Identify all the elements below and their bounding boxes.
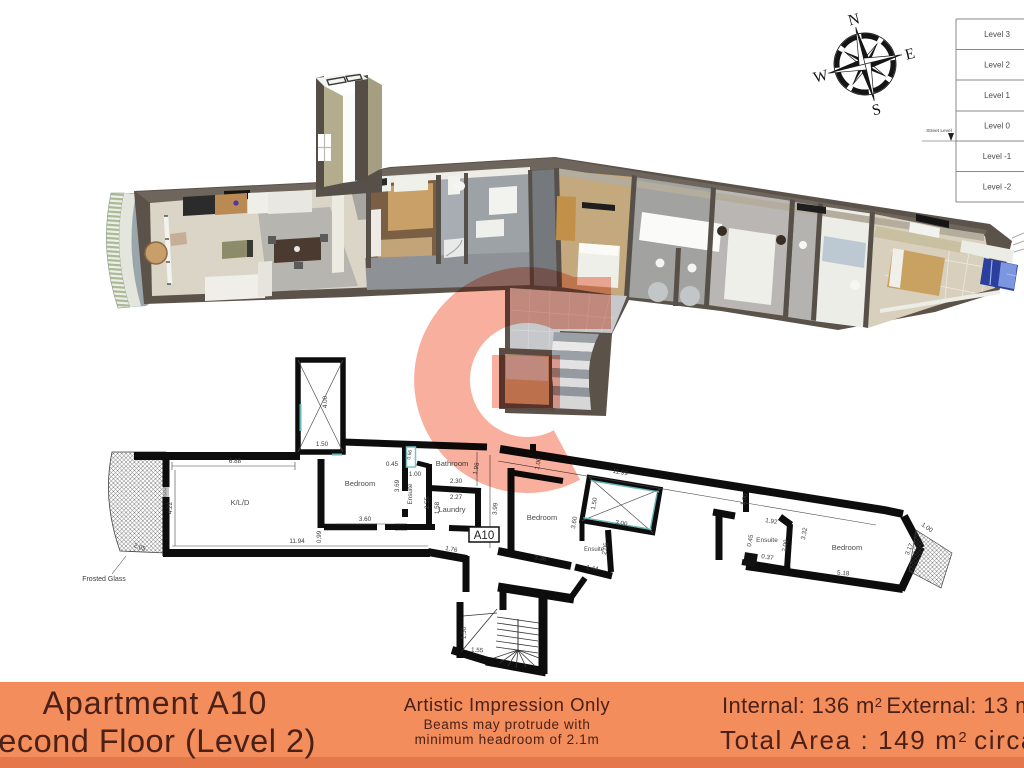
svg-text:A10: A10 bbox=[474, 530, 494, 542]
svg-text:Laundry: Laundry bbox=[438, 505, 465, 514]
svg-text:3.60: 3.60 bbox=[570, 516, 579, 530]
svg-text:minimum headroom of 2.1m: minimum headroom of 2.1m bbox=[415, 732, 600, 747]
svg-text:2.27: 2.27 bbox=[450, 494, 463, 501]
svg-text:3.60: 3.60 bbox=[359, 516, 372, 523]
svg-text:1.00: 1.00 bbox=[920, 521, 934, 534]
svg-text:3.69: 3.69 bbox=[394, 479, 401, 492]
svg-text:Ensuite: Ensuite bbox=[756, 537, 778, 544]
svg-text:11.99: 11.99 bbox=[612, 468, 629, 478]
svg-text:6.88: 6.88 bbox=[229, 458, 242, 465]
svg-text:Bedroom: Bedroom bbox=[527, 513, 557, 522]
svg-text:Beams may protrude with: Beams may protrude with bbox=[424, 717, 591, 732]
svg-text:E: E bbox=[903, 45, 916, 64]
svg-text:Level 1: Level 1 bbox=[984, 91, 1010, 100]
svg-text:Level -1: Level -1 bbox=[983, 152, 1012, 161]
svg-text:Bedroom: Bedroom bbox=[345, 479, 375, 488]
svg-text:Level -2: Level -2 bbox=[983, 183, 1012, 192]
svg-text:Ensuite: Ensuite bbox=[584, 547, 605, 553]
svg-text:Bedroom: Bedroom bbox=[832, 543, 862, 552]
svg-text:1.50: 1.50 bbox=[316, 441, 329, 448]
svg-text:2.55: 2.55 bbox=[424, 496, 431, 509]
svg-text:1.50: 1.50 bbox=[461, 626, 468, 639]
svg-text:W: W bbox=[812, 66, 831, 86]
svg-text:2.30: 2.30 bbox=[450, 478, 463, 485]
svg-text:1.92: 1.92 bbox=[765, 517, 779, 526]
svg-text:1.00: 1.00 bbox=[409, 471, 422, 478]
svg-text:5.18: 5.18 bbox=[837, 569, 850, 577]
svg-text:Level 2: Level 2 bbox=[984, 61, 1010, 70]
svg-text:Level 0: Level 0 bbox=[984, 122, 1010, 131]
svg-text:Frosted Glass: Frosted Glass bbox=[82, 576, 126, 583]
svg-text:Apartment A10: Apartment A10 bbox=[43, 685, 268, 721]
svg-text:Level 3: Level 3 bbox=[984, 30, 1010, 39]
svg-text:0.45: 0.45 bbox=[386, 461, 399, 468]
svg-text:Second Floor (Level 2): Second Floor (Level 2) bbox=[0, 723, 316, 759]
svg-text:11.94: 11.94 bbox=[289, 538, 305, 545]
svg-text:Total Area : 149 m2 circa: Total Area : 149 m2 circa bbox=[720, 725, 1024, 755]
svg-text:0.45: 0.45 bbox=[746, 534, 755, 548]
svg-text:Ensuite: Ensuite bbox=[407, 483, 414, 505]
svg-text:S: S bbox=[870, 101, 882, 120]
svg-text:1.55: 1.55 bbox=[471, 647, 484, 655]
svg-text:3.32: 3.32 bbox=[800, 527, 809, 541]
svg-text:4.22: 4.22 bbox=[167, 501, 174, 514]
svg-text:3.99: 3.99 bbox=[491, 502, 499, 515]
svg-text:0.37: 0.37 bbox=[761, 553, 775, 562]
svg-text:Internal: 136 m2 External: 13: Internal: 136 m2 External: 13 m2 bbox=[722, 693, 1024, 718]
svg-text:0.99: 0.99 bbox=[316, 530, 323, 543]
svg-text:4.00: 4.00 bbox=[322, 395, 329, 408]
svg-text:K/L/D: K/L/D bbox=[231, 498, 250, 507]
svg-text:Street Level: Street Level bbox=[926, 128, 952, 134]
svg-text:Artistic Impression Only: Artistic Impression Only bbox=[404, 694, 611, 715]
svg-text:N: N bbox=[847, 10, 862, 29]
